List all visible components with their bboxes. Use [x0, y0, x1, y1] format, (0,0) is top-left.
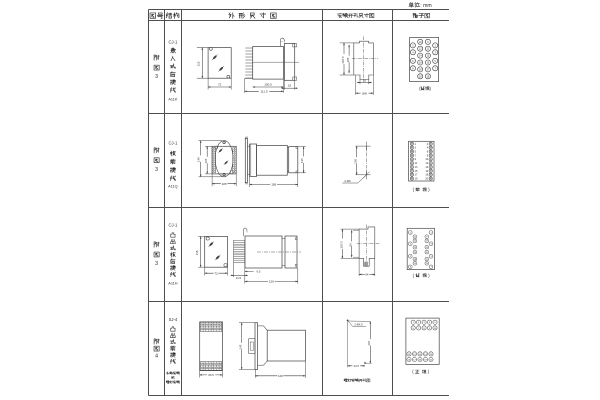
svg-text:111.5: 111.5 — [260, 89, 267, 93]
svg-text:72: 72 — [214, 271, 218, 275]
svg-text:A11H: A11H — [168, 281, 177, 285]
svg-text:9.5: 9.5 — [257, 270, 261, 274]
svg-text:(64): (64) — [362, 91, 367, 95]
svg-text:105: 105 — [222, 182, 227, 186]
svg-text:72: 72 — [218, 83, 222, 87]
svg-text:CJ-1: CJ-1 — [168, 222, 178, 227]
svg-text:15: 15 — [288, 84, 292, 88]
svg-text:: mm: : mm — [420, 3, 432, 9]
svg-text:CJ-1: CJ-1 — [168, 40, 178, 45]
svg-text:115: 115 — [195, 250, 199, 255]
svg-text:64: 64 — [365, 273, 369, 277]
svg-text:2-Φ4.5: 2-Φ4.5 — [354, 323, 363, 327]
svg-text:96: 96 — [349, 243, 353, 247]
svg-text:156: 156 — [271, 183, 276, 187]
svg-text:115: 115 — [197, 61, 201, 66]
svg-text:CJ-1: CJ-1 — [168, 141, 178, 146]
svg-text:3: 3 — [155, 261, 158, 267]
svg-text:135: 135 — [300, 158, 304, 163]
svg-text:SJ-4: SJ-4 — [169, 317, 178, 322]
svg-text:2-Φ6: 2-Φ6 — [344, 179, 351, 183]
svg-text:130: 130 — [354, 159, 358, 164]
svg-text:3: 3 — [155, 167, 158, 173]
svg-text:60.5: 60.5 — [208, 373, 214, 377]
svg-text:107.5: 107.5 — [339, 241, 343, 249]
svg-text:128: 128 — [278, 374, 283, 378]
svg-text:11.5: 11.5 — [236, 276, 242, 280]
svg-text:133: 133 — [367, 341, 371, 346]
svg-text:A11Q: A11Q — [168, 184, 177, 188]
svg-text:4: 4 — [155, 354, 158, 360]
svg-text:126: 126 — [269, 280, 274, 284]
svg-text:A11K: A11K — [168, 97, 177, 101]
svg-text:3: 3 — [155, 74, 158, 80]
svg-text:16: 16 — [363, 78, 367, 82]
svg-text:145: 145 — [239, 344, 243, 349]
svg-text:149: 149 — [197, 157, 201, 162]
svg-text:105: 105 — [346, 57, 350, 62]
svg-text:125: 125 — [204, 158, 208, 163]
svg-text:107.5: 107.5 — [341, 56, 345, 64]
svg-text:100.5: 100.5 — [264, 83, 272, 87]
svg-text:44.5: 44.5 — [354, 364, 360, 368]
